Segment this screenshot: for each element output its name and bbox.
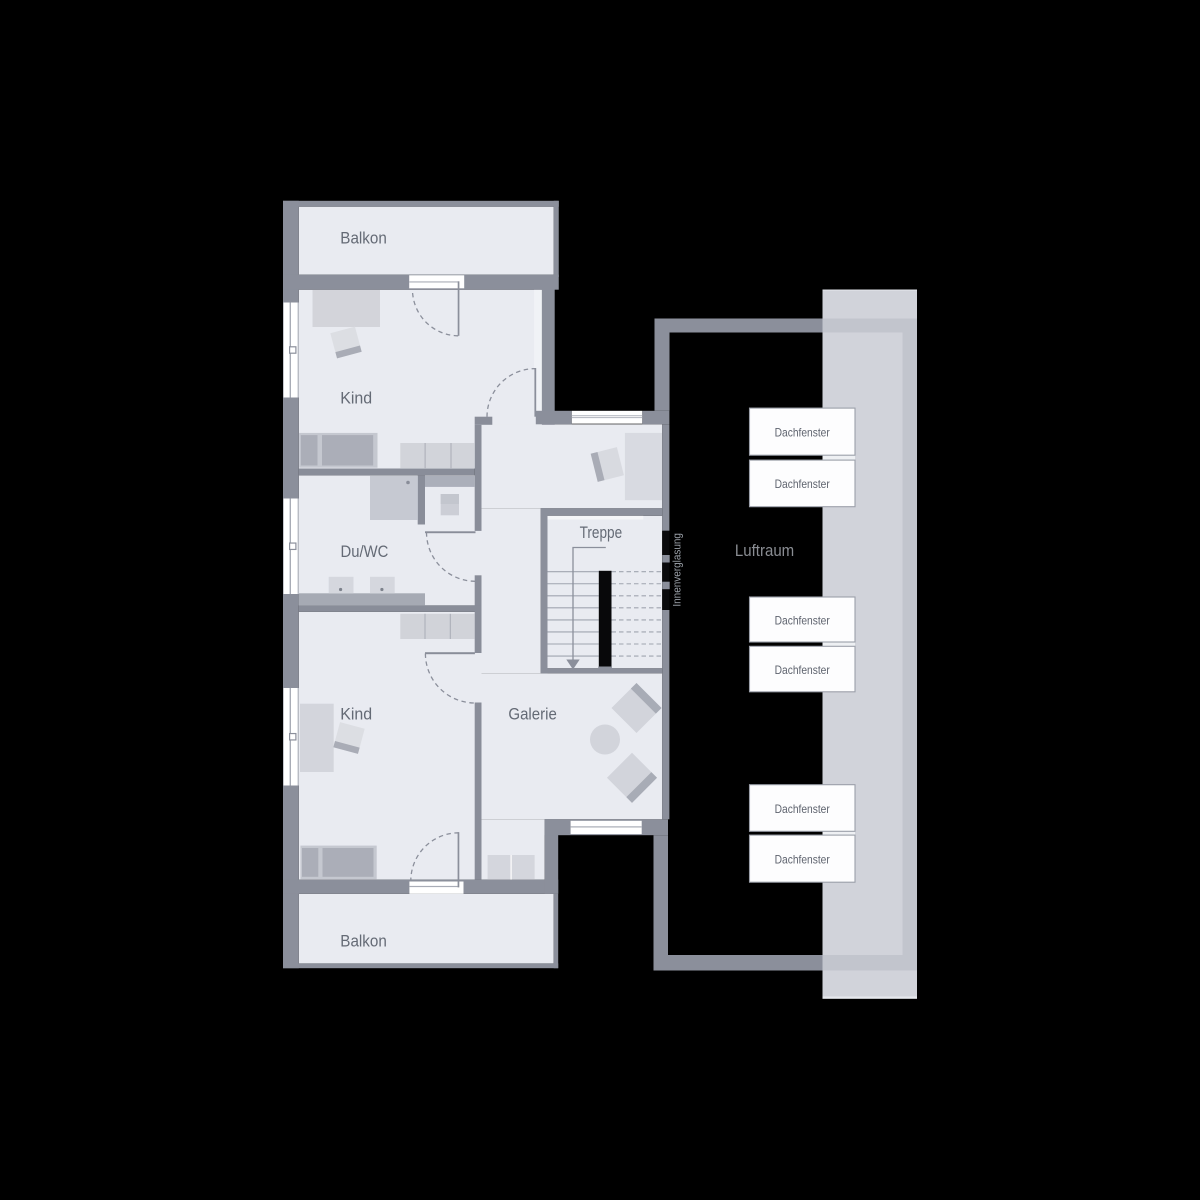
svg-text:Luftraum: Luftraum bbox=[735, 541, 794, 560]
svg-text:Dachfenster: Dachfenster bbox=[775, 854, 830, 867]
svg-text:Dachfenster: Dachfenster bbox=[775, 664, 830, 677]
svg-text:Dachfenster: Dachfenster bbox=[775, 427, 830, 440]
svg-text:Innenverglasung: Innenverglasung bbox=[672, 533, 684, 607]
svg-text:Dachfenster: Dachfenster bbox=[775, 615, 830, 628]
svg-text:Galerie: Galerie bbox=[508, 704, 556, 723]
svg-text:Treppe: Treppe bbox=[580, 523, 623, 542]
svg-text:Du/WC: Du/WC bbox=[341, 543, 389, 561]
svg-text:Kind: Kind bbox=[340, 389, 372, 408]
svg-text:Dachfenster: Dachfenster bbox=[775, 478, 830, 491]
svg-text:Balkon: Balkon bbox=[340, 932, 387, 951]
svg-text:Kind: Kind bbox=[340, 705, 372, 724]
svg-text:Dachfenster: Dachfenster bbox=[775, 803, 830, 816]
svg-text:Balkon: Balkon bbox=[340, 229, 387, 248]
